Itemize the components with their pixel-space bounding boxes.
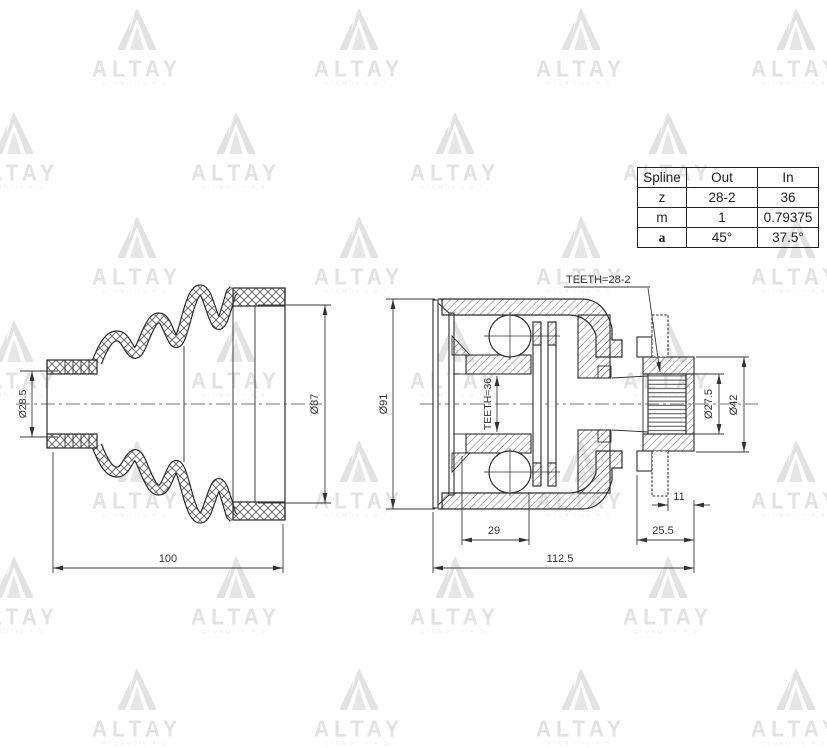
boot-bellows-top [97,290,234,362]
spline-table-row-m: m 1 0.79375 [638,208,819,228]
joint-bottom-tab [637,451,668,496]
spline-z-in: 36 [758,188,819,208]
spline-m-out: 1 [687,208,758,228]
drawing-canvas: Ø28.5 Ø87 100 Ø91 TEETH=36 TEETH=28-2 Ø2… [0,0,827,745]
dim-joint-collar-diameter: Ø42 [728,395,740,416]
dim-boot-length: 100 [159,553,177,565]
joint-cover-plate [433,300,454,508]
dim-joint-housing-diameter: Ø91 [378,394,390,415]
joint-cage [533,322,556,486]
dim-joint-step-length: 11 [673,491,684,503]
spline-table-header-row: Spline Out In [638,168,819,188]
dimension-labels: Ø28.5 Ø87 100 Ø91 TEETH=36 TEETH=28-2 Ø2… [17,274,740,565]
dim-boot-neck-diameter: Ø28.5 [17,390,29,419]
dim-joint-spline-diameter: Ø27.5 [703,389,715,419]
dim-joint-outer-teeth: TEETH=28-2 [566,274,631,286]
spline-teeth-area [648,374,686,434]
cv-joint-technical-drawing: { "watermark": { "brand": "ALTAY", "subt… [0,0,827,745]
spline-table-header-out: Out [687,168,758,188]
dim-joint-inner-teeth: TEETH=36 [482,378,494,430]
spline-table-header-spline: Spline [638,168,687,188]
spline-a-label: a [638,228,687,248]
spline-m-label: m [638,208,687,228]
spline-z-out: 28-2 [687,188,758,208]
dim-joint-race-width: 29 [488,525,500,537]
dim-joint-stub-length: 25.5 [652,525,673,537]
spline-table-row-a: a 45° 37.5° [638,228,819,248]
spline-z-label: z [638,188,687,208]
joint-stub-shaft [643,357,694,451]
spline-a-out: 45° [687,228,758,248]
dim-boot-big-diameter: Ø87 [309,394,321,415]
dim-joint-overall-length: 112.5 [547,553,574,565]
dimension-graphics [20,287,749,573]
spline-table: Spline Out In z 28-2 36 m 1 0.79375 a 45… [637,167,819,248]
spline-a-in: 37.5° [758,228,819,248]
spline-table-header-in: In [758,168,819,188]
spline-m-in: 0.79375 [758,208,819,228]
spline-table-row-z: z 28-2 36 [638,188,819,208]
boot-bellows-bottom [97,446,234,518]
